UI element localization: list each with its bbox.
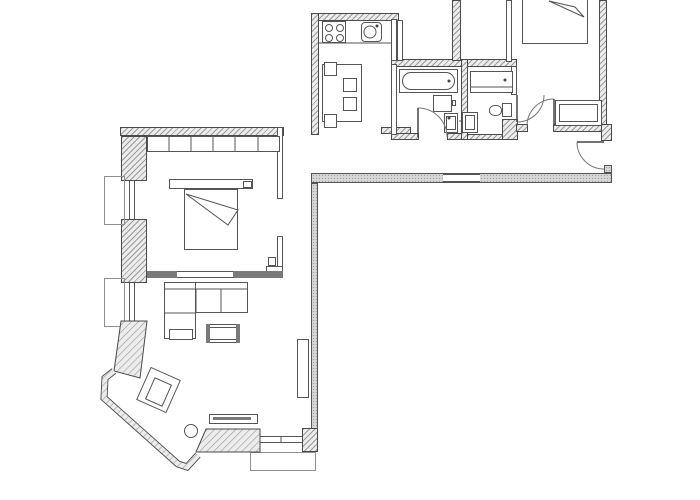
- kitchen-top-wall: [311, 13, 399, 21]
- bath2-sink-inner: [465, 115, 475, 130]
- bath1-left-wall: [391, 64, 397, 135]
- bath2-shower-tub: [470, 71, 513, 93]
- headboard-box: [243, 181, 252, 188]
- dining-chair-2: [343, 78, 357, 92]
- bath1-sink-inner: [446, 116, 456, 130]
- shaft-right-wall: [452, 0, 461, 61]
- entry-corner-pier: [601, 124, 612, 141]
- washer-connector: [452, 100, 456, 106]
- bedroom1-wall-cap-right: [233, 271, 283, 278]
- sideboard-tv-screen: [213, 417, 251, 420]
- bedroom1-top-wall: [120, 127, 284, 136]
- bedroom1-wall-cap-left: [147, 271, 177, 278]
- bay-window-sill: [250, 452, 316, 471]
- coffee-table-end-right: [236, 324, 240, 343]
- bathtub-inner: [402, 72, 455, 90]
- window-left-1: [129, 181, 135, 219]
- living-room-right-wall: [311, 183, 318, 430]
- headboard-shelf: [169, 179, 253, 189]
- floor-plan-canvas: [0, 0, 700, 500]
- door-notch: [268, 257, 276, 266]
- washing-machine: [433, 95, 452, 112]
- corridor-wall-opening: [443, 174, 480, 182]
- dining-chair-1: [324, 62, 337, 76]
- shelf-unit: [297, 339, 309, 398]
- kitchen-stove: [322, 21, 346, 43]
- coffee-table-end-left: [206, 324, 210, 343]
- sofa-foot-cushion: [169, 329, 193, 340]
- bed-2: [522, 0, 588, 44]
- toilet-tank: [502, 103, 512, 117]
- window-bottom: [260, 436, 302, 443]
- living-bottom-right-pier: [302, 428, 318, 452]
- shaft-left-wall: [397, 20, 403, 61]
- bedroom2-left-wall: [506, 0, 512, 62]
- window-sill-1: [104, 176, 125, 225]
- window-pier-2: [121, 219, 147, 283]
- dining-chair-3: [343, 97, 357, 111]
- kitchen-left-wall: [311, 13, 319, 135]
- dining-chair-4: [324, 114, 337, 128]
- window-pier-1: [121, 136, 147, 181]
- window-sill-2: [104, 278, 125, 327]
- window-left-2: [129, 283, 135, 321]
- toilet-bowl: [489, 105, 502, 116]
- coffee-table-inner: [209, 327, 237, 340]
- wardrobe-2-inner: [559, 104, 598, 122]
- corridor-end-stub: [604, 165, 612, 173]
- window-pier-3-angled: [114, 321, 147, 378]
- bedroom2-bottom-wall-left: [516, 124, 528, 132]
- bed-1: [184, 189, 238, 250]
- bath2-bottom-wall: [467, 134, 503, 140]
- bath1-bottom-right-stub: [447, 133, 462, 140]
- wardrobe-1: [147, 136, 280, 152]
- kitchen-sink-unit: [361, 22, 382, 42]
